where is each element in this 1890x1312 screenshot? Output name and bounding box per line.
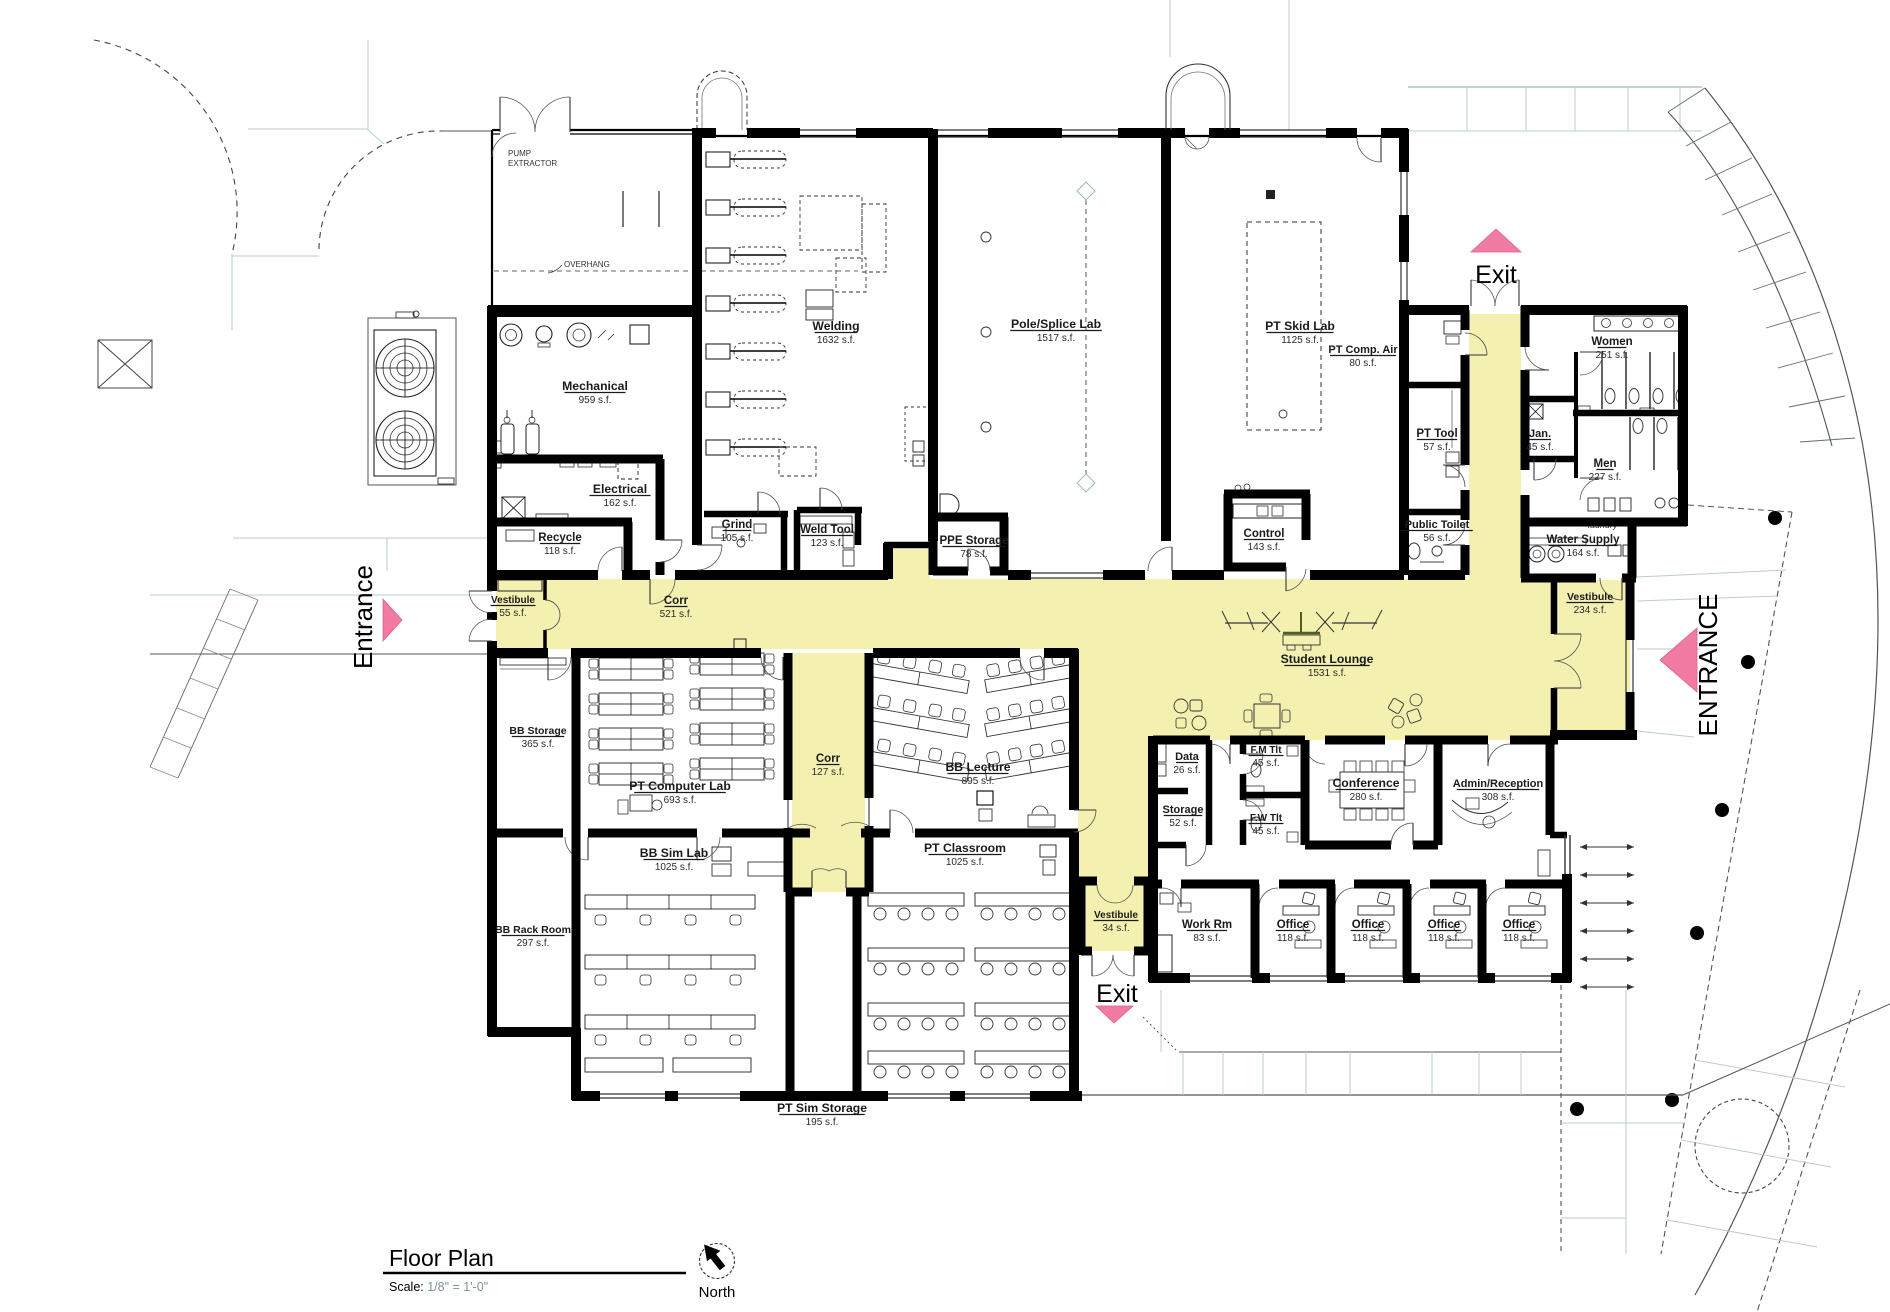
svg-text:1025 s.f.: 1025 s.f.	[655, 862, 693, 873]
svg-text:PT Classroom: PT Classroom	[924, 841, 1006, 855]
svg-text:895 s.f.: 895 s.f.	[962, 776, 995, 787]
svg-text:PT Sim Storage: PT Sim Storage	[777, 1101, 867, 1115]
svg-text:365 s.f.: 365 s.f.	[522, 739, 555, 750]
svg-text:118 s.f.: 118 s.f.	[1352, 933, 1384, 944]
svg-text:Exit: Exit	[1475, 261, 1517, 289]
svg-text:BB Rack Room: BB Rack Room	[495, 924, 571, 936]
svg-text:123 s.f.: 123 s.f.	[811, 538, 844, 549]
svg-text:26 s.f.: 26 s.f.	[1173, 765, 1200, 776]
svg-text:1125 s.f.: 1125 s.f.	[1281, 335, 1319, 346]
svg-text:Electrical: Electrical	[593, 482, 647, 496]
svg-text:BB Sim Lab: BB Sim Lab	[640, 846, 708, 860]
svg-text:Men: Men	[1594, 458, 1617, 470]
svg-text:Storage: Storage	[1163, 804, 1204, 816]
svg-text:PUMP: PUMP	[508, 149, 531, 158]
svg-text:308 s.f.: 308 s.f.	[1482, 792, 1515, 803]
svg-text:PPE Storage: PPE Storage	[939, 535, 1008, 547]
svg-text:162 s.f.: 162 s.f.	[604, 498, 637, 509]
svg-text:45 s.f.: 45 s.f.	[1252, 826, 1279, 837]
svg-text:118 s.f.: 118 s.f.	[544, 546, 576, 557]
svg-text:Scale: 1/8" = 1'-0": Scale: 1/8" = 1'-0"	[389, 1280, 488, 1294]
svg-text:Women: Women	[1591, 336, 1632, 348]
svg-text:Welding: Welding	[812, 319, 859, 333]
svg-text:PT Tool: PT Tool	[1416, 428, 1457, 440]
svg-text:Exit: Exit	[1096, 980, 1138, 1008]
svg-text:280 s.f.: 280 s.f.	[1350, 792, 1383, 803]
svg-text:1025 s.f.: 1025 s.f.	[946, 857, 984, 868]
svg-text:EXTRACTOR: EXTRACTOR	[508, 159, 557, 168]
svg-text:Office: Office	[1277, 919, 1310, 931]
svg-text:105 s.f.: 105 s.f.	[721, 533, 754, 544]
svg-text:195 s.f.: 195 s.f.	[806, 1117, 839, 1128]
svg-text:959 s.f.: 959 s.f.	[579, 395, 612, 406]
svg-text:118 s.f.: 118 s.f.	[1277, 933, 1309, 944]
svg-text:Office: Office	[1428, 919, 1461, 931]
svg-text:Entrance: Entrance	[348, 565, 378, 669]
svg-text:Vestibule: Vestibule	[491, 595, 535, 606]
svg-text:Control: Control	[1244, 528, 1285, 540]
svg-text:80 s.f.: 80 s.f.	[1349, 358, 1376, 369]
svg-text:Corr: Corr	[664, 595, 689, 607]
svg-text:78 s.f.: 78 s.f.	[960, 549, 987, 560]
svg-text:118 s.f.: 118 s.f.	[1428, 933, 1460, 944]
svg-text:Admin/Reception: Admin/Reception	[1453, 778, 1544, 790]
svg-text:52 s.f.: 52 s.f.	[1169, 818, 1196, 829]
svg-text:34 s.f.: 34 s.f.	[1102, 923, 1129, 934]
svg-text:PT Comp. Air: PT Comp. Air	[1328, 344, 1398, 356]
svg-text:Conference: Conference	[1332, 776, 1399, 790]
svg-text:Data: Data	[1175, 751, 1200, 763]
svg-text:83 s.f.: 83 s.f.	[1193, 933, 1220, 944]
svg-text:297 s.f.: 297 s.f.	[517, 938, 550, 949]
svg-text:Public Toilet: Public Toilet	[1405, 519, 1470, 531]
svg-text:118 s.f.: 118 s.f.	[1503, 933, 1535, 944]
svg-text:Pole/Splice Lab: Pole/Splice Lab	[1011, 317, 1101, 331]
svg-text:45 s.f.: 45 s.f.	[1526, 442, 1553, 453]
svg-text:227 s.f.: 227 s.f.	[1589, 472, 1622, 483]
svg-text:OVERHANG: OVERHANG	[564, 260, 610, 269]
svg-text:45 s.f.: 45 s.f.	[1252, 758, 1279, 769]
svg-text:234 s.f.: 234 s.f.	[1574, 605, 1607, 616]
svg-text:521 s.f.: 521 s.f.	[660, 609, 693, 620]
svg-text:1531 s.f.: 1531 s.f.	[1308, 668, 1346, 679]
svg-text:PT Skid Lab: PT Skid Lab	[1265, 319, 1335, 333]
svg-text:BB Lecture: BB Lecture	[945, 760, 1010, 774]
svg-text:693 s.f.: 693 s.f.	[664, 795, 697, 806]
svg-text:1632 s.f.: 1632 s.f.	[817, 335, 855, 346]
svg-text:Mechanical: Mechanical	[562, 379, 628, 393]
svg-text:164 s.f.: 164 s.f.	[1567, 548, 1600, 559]
svg-text:251 s.f.: 251 s.f.	[1596, 350, 1629, 361]
svg-text:Recycle: Recycle	[538, 532, 581, 544]
svg-text:1517 s.f.: 1517 s.f.	[1037, 333, 1075, 344]
svg-text:Student Lounge: Student Lounge	[1281, 652, 1374, 666]
svg-text:PT Computer Lab: PT Computer Lab	[629, 779, 731, 793]
svg-text:Office: Office	[1352, 919, 1385, 931]
svg-text:143 s.f.: 143 s.f.	[1248, 542, 1281, 553]
svg-text:Floor Plan: Floor Plan	[389, 1245, 494, 1271]
svg-text:Grind: Grind	[722, 519, 753, 531]
svg-text:Work Rm: Work Rm	[1182, 919, 1232, 931]
svg-text:127 s.f.: 127 s.f.	[812, 767, 845, 778]
svg-text:Vestibule: Vestibule	[1094, 910, 1138, 921]
svg-text:BB Storage: BB Storage	[509, 725, 566, 737]
svg-text:North: North	[699, 1284, 736, 1301]
svg-text:57 s.f.: 57 s.f.	[1423, 442, 1450, 453]
svg-text:Corr: Corr	[816, 753, 841, 765]
svg-text:F.M Tlt: F.M Tlt	[1250, 745, 1282, 756]
svg-text:Office: Office	[1503, 919, 1536, 931]
svg-text:Weld Tool: Weld Tool	[800, 524, 854, 536]
svg-text:F.W Tlt: F.W Tlt	[1250, 813, 1283, 824]
svg-text:ENTRANCE: ENTRANCE	[1693, 593, 1723, 736]
svg-text:Jan.: Jan.	[1529, 428, 1551, 440]
svg-text:Vestibule: Vestibule	[1567, 591, 1613, 603]
svg-text:56 s.f.: 56 s.f.	[1423, 533, 1450, 544]
svg-text:Water Supply: Water Supply	[1546, 534, 1620, 546]
svg-text:55 s.f.: 55 s.f.	[499, 608, 526, 619]
